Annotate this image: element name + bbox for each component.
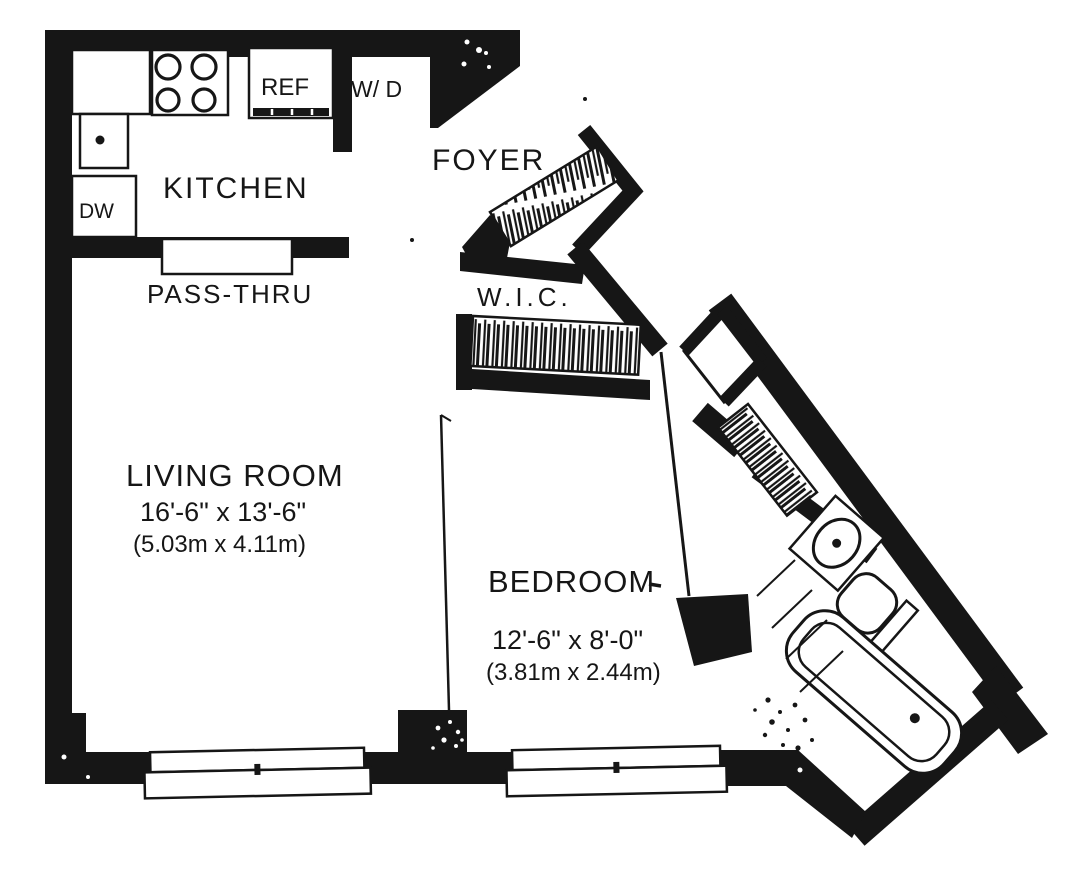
living-room-dimensions-metric: (5.03m x 4.11m) bbox=[133, 531, 306, 558]
floor-plan: KITCHEN FOYER W.I.C. PASS-THRU LIVING RO… bbox=[0, 0, 1092, 874]
outer-wall-left-step bbox=[72, 713, 86, 757]
room-label-living-room: LIVING ROOM bbox=[126, 458, 344, 493]
kitchen-counter bbox=[72, 50, 150, 114]
wall-wic-top bbox=[460, 252, 585, 284]
outer-wall-left bbox=[45, 30, 72, 763]
wic-rod-hatching bbox=[470, 316, 640, 375]
outer-wall-bottom-right bbox=[718, 752, 788, 786]
pass-thru-counter bbox=[162, 239, 292, 274]
wall-bedroom-bath-wedge bbox=[676, 594, 752, 666]
room-label-foyer: FOYER bbox=[432, 144, 545, 177]
label-dishwasher: DW bbox=[79, 200, 114, 223]
outer-wall-bottom-left bbox=[45, 752, 155, 784]
window-living-room bbox=[144, 748, 371, 799]
label-pass-thru: PASS-THRU bbox=[147, 279, 313, 309]
sink-drain bbox=[96, 136, 105, 145]
outer-wall-foyer-corner bbox=[430, 30, 520, 128]
scan-speckles-bath-door bbox=[753, 697, 814, 750]
kitchen-stove bbox=[152, 50, 228, 115]
bedroom-east-partition-line bbox=[661, 352, 689, 596]
label-washer-dryer: W/ D bbox=[351, 76, 402, 102]
bedroom-dimensions-imperial: 12'-6" x 8'-0" bbox=[492, 625, 643, 655]
window-bedroom bbox=[506, 746, 727, 797]
window-mullion bbox=[254, 764, 260, 775]
room-label-wic: W.I.C. bbox=[477, 282, 572, 312]
outer-wall-bottom-mid bbox=[363, 752, 512, 784]
divider-top-tick bbox=[441, 415, 451, 421]
bedroom-dimensions-metric: (3.81m x 2.44m) bbox=[486, 659, 661, 686]
wall-kitchen-divider bbox=[333, 57, 352, 152]
wic-rod bbox=[470, 316, 640, 375]
room-label-bedroom: BEDROOM bbox=[488, 564, 655, 599]
living-bedroom-divider-line bbox=[441, 415, 449, 710]
window-mullion bbox=[613, 762, 619, 773]
kitchen-sink bbox=[80, 114, 128, 168]
living-room-dimensions-imperial: 16'-6" x 13'-6" bbox=[140, 497, 306, 527]
room-label-kitchen: KITCHEN bbox=[163, 172, 309, 205]
label-refrigerator: REF bbox=[261, 74, 309, 101]
